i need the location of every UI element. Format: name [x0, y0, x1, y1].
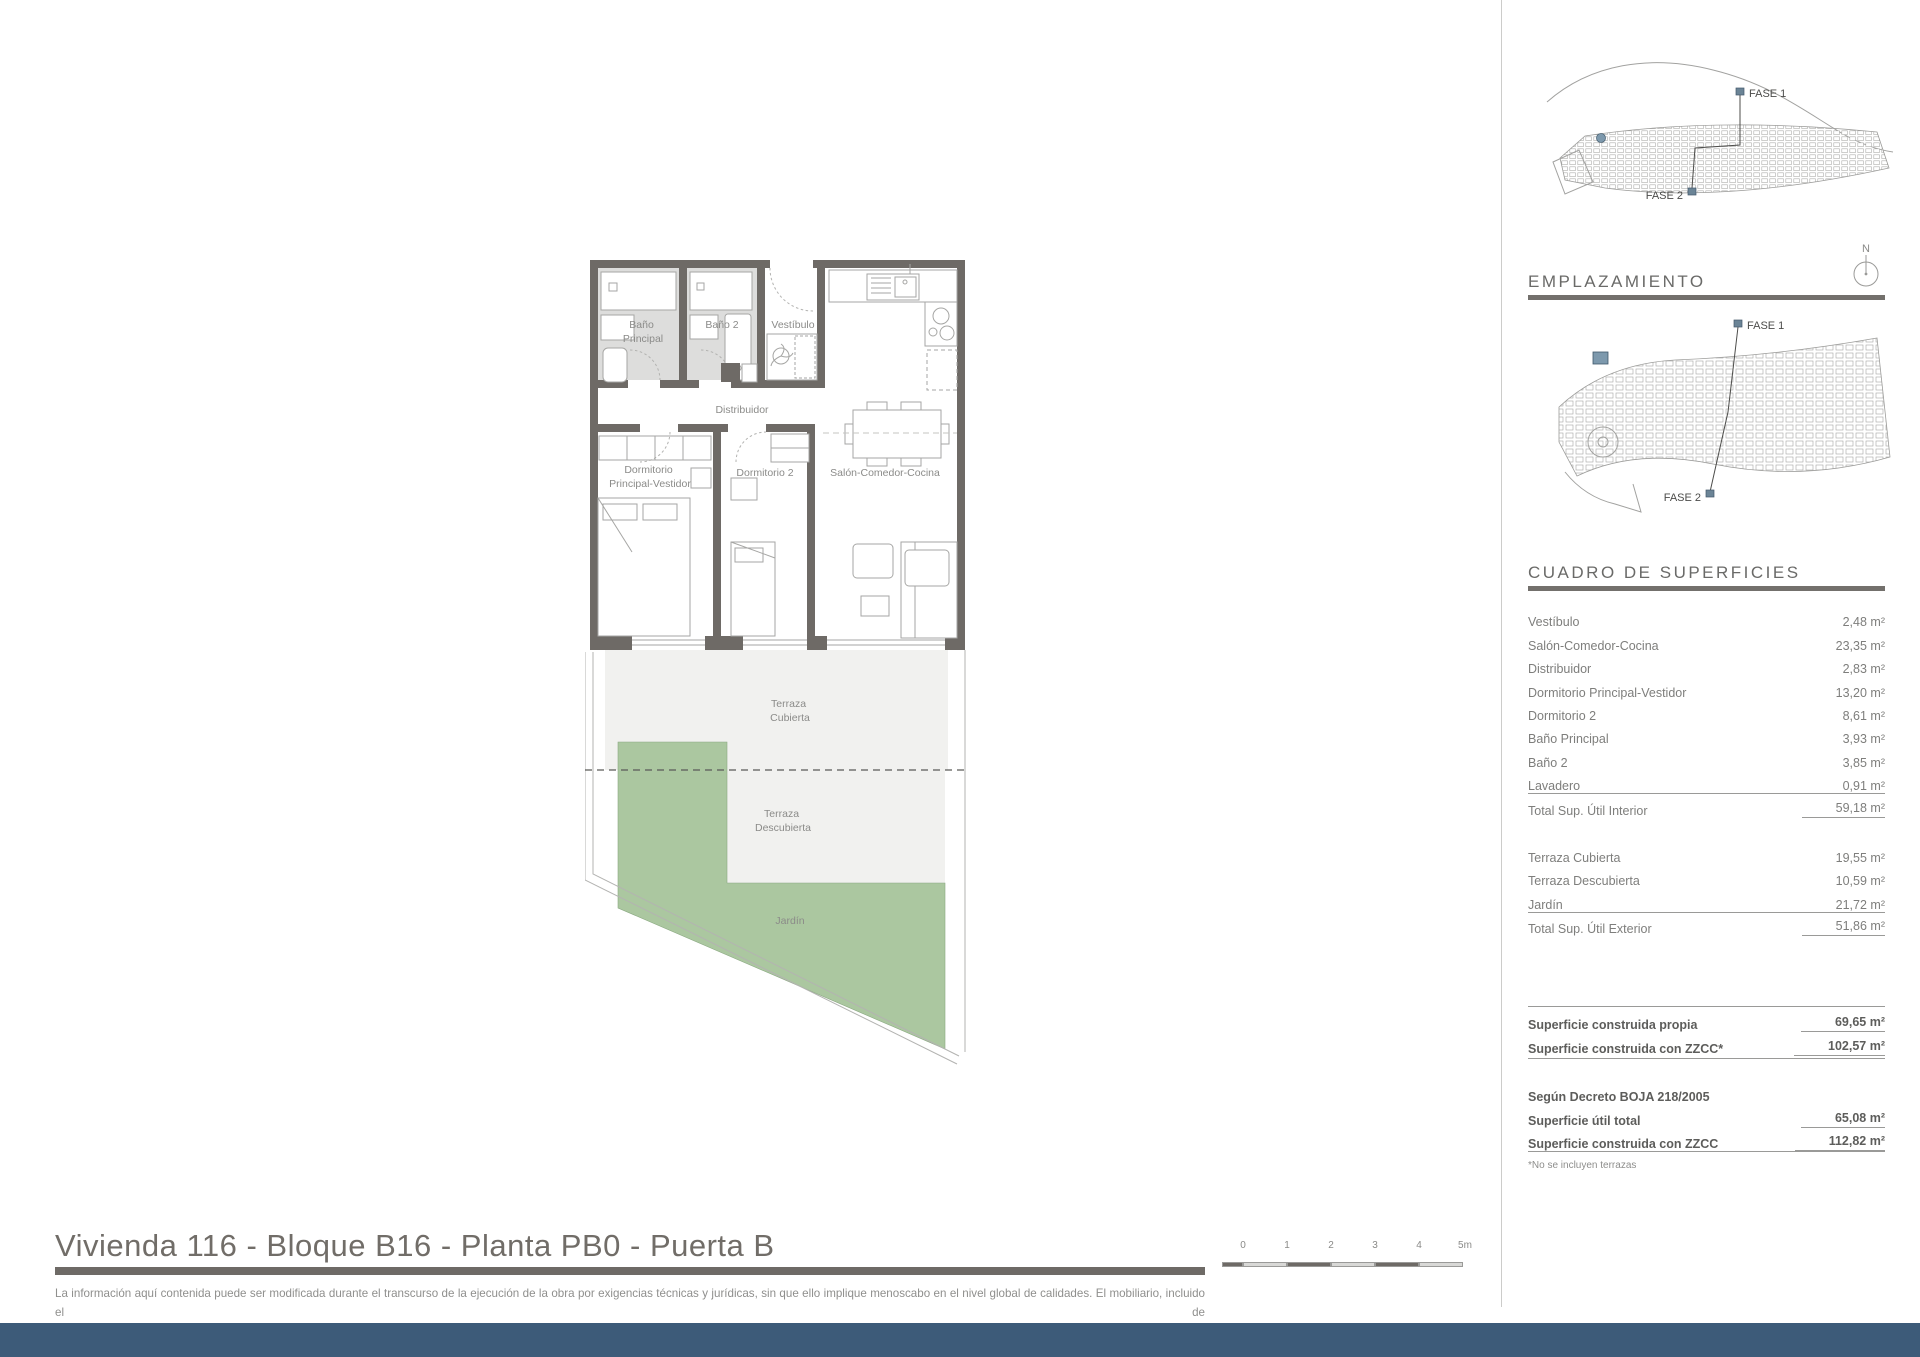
row-label: Dormitorio 2 [1528, 709, 1596, 723]
row-label: Salón-Comedor-Cocina [1528, 639, 1659, 653]
wall-right [957, 260, 965, 650]
surfaces-table: Vestíbulo 2,48 m² Salón-Comedor-Cocina 2… [1528, 606, 1885, 1171]
table-row: Vestíbulo 2,48 m² [1528, 606, 1885, 629]
scale-segment [1287, 1262, 1331, 1267]
compass-n-label: N [1862, 243, 1870, 255]
row-value: 2,83 m² [1843, 662, 1885, 676]
footer-color-bar [0, 1323, 1920, 1357]
row-value: 65,08 m² [1801, 1111, 1885, 1128]
emplazamiento-heading: EMPLAZAMIENTO [1528, 272, 1706, 292]
row-label: Superficie construida propia [1528, 1018, 1697, 1032]
table-row: Jardín 21,72 m² [1528, 888, 1885, 911]
row-value: 59,18 m² [1802, 801, 1885, 818]
emplazamiento-underline [1528, 295, 1885, 300]
row-label: Total Sup. Útil Interior [1528, 804, 1648, 818]
row-label: Superficie construida con ZZCC [1528, 1137, 1718, 1151]
lavadero-appliance [721, 363, 740, 382]
scale-tick-label: 1 [1284, 1240, 1290, 1251]
scale-tick-label: 4 [1416, 1240, 1422, 1251]
fase2-label: FASE 2 [1664, 492, 1701, 504]
scale-tick-label: 3 [1372, 1240, 1378, 1251]
scale-tick-label: 2 [1328, 1240, 1334, 1251]
room-label-bano2: Baño 2 [705, 319, 738, 331]
wall-bano2-vestibulo [757, 268, 765, 388]
scale-tick-label: 0 [1240, 1240, 1246, 1251]
row-label: Superficie útil total [1528, 1114, 1641, 1128]
row-value: 19,55 m² [1836, 851, 1885, 865]
fase1-label: FASE 1 [1747, 320, 1784, 332]
plan-sheet-page: Baño Principal Baño 2 Vestíbulo Distribu… [0, 0, 1920, 1357]
room-label-terraza-descubierta-2: Descubierta [755, 822, 811, 834]
room-label-dorm-ppal-1: Dormitorio [624, 464, 673, 476]
total-exterior-row: Total Sup. Útil Exterior 51,86 m² [1528, 912, 1885, 936]
wall-bottom-2 [705, 636, 743, 650]
unit-block-marker [1593, 352, 1608, 364]
table-row: Terraza Cubierta 19,55 m² [1528, 842, 1885, 865]
room-label-terraza-descubierta-1: Terraza [764, 808, 799, 820]
vertical-divider [1501, 0, 1502, 1307]
buildings-cluster [1560, 125, 1889, 193]
scale-tick-label: 5m [1458, 1240, 1472, 1251]
row-value: 23,35 m² [1836, 639, 1885, 653]
site-plan-drawing: FASE 1 FASE 2 [1545, 312, 1895, 527]
row-value: 0,91 m² [1843, 779, 1885, 793]
wall-below-bano-ppal-b [660, 380, 687, 388]
table-row: Superficie construida propia 69,65 m² [1528, 1009, 1885, 1032]
dining-table [845, 402, 949, 466]
row-value: 3,85 m² [1843, 756, 1885, 770]
room-label-dorm2: Dormitorio 2 [736, 467, 793, 479]
fase1-marker [1736, 88, 1744, 95]
row-label: Terraza Descubierta [1528, 874, 1640, 888]
scale-segment [1331, 1262, 1375, 1267]
wall-left [590, 260, 598, 650]
wall-bottom-3 [807, 636, 827, 650]
floor-plan-drawing: Baño Principal Baño 2 Vestíbulo Distribu… [585, 252, 975, 1067]
row-value: 3,93 m² [1843, 732, 1885, 746]
scale-segment [1243, 1262, 1287, 1267]
room-label-salon: Salón-Comedor-Cocina [830, 467, 940, 479]
room-label-bano-principal-2: Principal [623, 333, 663, 345]
title-underline [55, 1267, 1205, 1275]
fase2-label: FASE 2 [1646, 190, 1683, 202]
row-label: Vestíbulo [1528, 615, 1579, 629]
wall-distrib-1 [598, 424, 640, 432]
room-label-jardin: Jardín [775, 915, 804, 927]
fase1-label: FASE 1 [1749, 88, 1786, 100]
wall-top-right [813, 260, 965, 268]
row-label: Superficie construida con ZZCC* [1528, 1042, 1723, 1056]
scale-segment [1222, 1262, 1243, 1267]
row-label: Total Sup. Útil Exterior [1528, 922, 1652, 936]
row-label: Terraza Cubierta [1528, 851, 1620, 865]
table-row: Superficie construida con ZZCC* 102,57 m… [1528, 1032, 1885, 1055]
wall-distrib-3 [766, 424, 815, 432]
wall-dorm2-salon [807, 432, 815, 636]
built-surface-block: Superficie construida propia 69,65 m² Su… [1528, 1006, 1885, 1059]
row-value: 10,59 m² [1836, 874, 1885, 888]
wall-top-left [590, 260, 770, 268]
wall-shaft-bottom [765, 380, 825, 388]
row-label: Baño 2 [1528, 756, 1568, 770]
unit-location-marker [1597, 134, 1606, 143]
table-row: Superficie útil total 65,08 m² [1528, 1104, 1885, 1127]
row-value: 21,72 m² [1836, 898, 1885, 912]
table-footnote: *No se incluyen terrazas [1528, 1160, 1885, 1171]
scale-bar: 0 1 2 3 4 5m [1222, 1240, 1472, 1270]
surfaces-heading: CUADRO DE SUPERFICIES [1528, 563, 1801, 583]
room-label-dorm-ppal-2: Principal-Vestidor [609, 478, 691, 490]
fase1-marker [1734, 320, 1742, 327]
fase2-marker [1688, 188, 1696, 195]
decreto-heading-row: Según Decreto BOJA 218/2005 [1528, 1081, 1885, 1104]
row-value: 102,57 m² [1794, 1039, 1885, 1056]
room-label-vestibulo: Vestíbulo [771, 319, 814, 331]
buildings-cluster [1559, 338, 1890, 476]
surfaces-underline [1528, 586, 1885, 591]
table-row: Lavadero 0,91 m² [1528, 770, 1885, 793]
wall-vestibulo-right [817, 268, 825, 388]
row-value: 69,65 m² [1801, 1015, 1885, 1032]
table-row: Superficie construida con ZZCC 112,82 m² [1528, 1128, 1885, 1152]
wall-below-bano2-a [687, 380, 699, 388]
room-label-terraza-cubierta-1: Terraza [771, 698, 806, 710]
lavadero-cabinet [742, 364, 757, 382]
wall-distrib-2 [678, 424, 728, 432]
room-label-distribuidor: Distribuidor [715, 404, 769, 416]
row-value: 2,48 m² [1843, 615, 1885, 629]
row-label: Jardín [1528, 898, 1563, 912]
row-value: 8,61 m² [1843, 709, 1885, 723]
wall-bottom-1 [590, 636, 632, 650]
row-value: 51,86 m² [1802, 919, 1885, 936]
site-overview-drawing: FASE 1 FASE 2 [1545, 40, 1895, 220]
table-row: Dormitorio 2 8,61 m² [1528, 700, 1885, 723]
table-row: Baño Principal 3,93 m² [1528, 723, 1885, 746]
room-label-bano-principal-1: Baño [629, 319, 654, 331]
disclaimer-line-1: La información aquí contenida puede ser … [55, 1285, 1205, 1322]
row-value: 13,20 m² [1836, 686, 1885, 700]
row-value: 112,82 m² [1795, 1134, 1885, 1151]
table-row: Dormitorio Principal-Vestidor 13,20 m² [1528, 676, 1885, 699]
row-label: Dormitorio Principal-Vestidor [1528, 686, 1686, 700]
row-label: Baño Principal [1528, 732, 1609, 746]
room-label-terraza-cubierta-2: Cubierta [770, 712, 810, 724]
row-label: Distribuidor [1528, 662, 1591, 676]
wall-dorm-ppal-dorm2 [713, 432, 721, 636]
table-row: Distribuidor 2,83 m² [1528, 653, 1885, 676]
wall-between-banos [679, 268, 687, 388]
sheet-title: Vivienda 116 - Bloque B16 - Planta PB0 -… [55, 1228, 775, 1264]
scale-segment [1419, 1262, 1463, 1267]
row-label: Lavadero [1528, 779, 1580, 793]
north-compass-icon: N [1845, 240, 1887, 292]
table-row: Terraza Descubierta 10,59 m² [1528, 865, 1885, 888]
total-interior-row: Total Sup. Útil Interior 59,18 m² [1528, 793, 1885, 817]
fase2-marker [1706, 490, 1714, 497]
scale-segment [1375, 1262, 1419, 1267]
table-row: Baño 2 3,85 m² [1528, 746, 1885, 769]
table-row: Salón-Comedor-Cocina 23,35 m² [1528, 629, 1885, 652]
site-south-outline [1565, 472, 1641, 512]
decreto-heading: Según Decreto BOJA 218/2005 [1528, 1090, 1710, 1104]
